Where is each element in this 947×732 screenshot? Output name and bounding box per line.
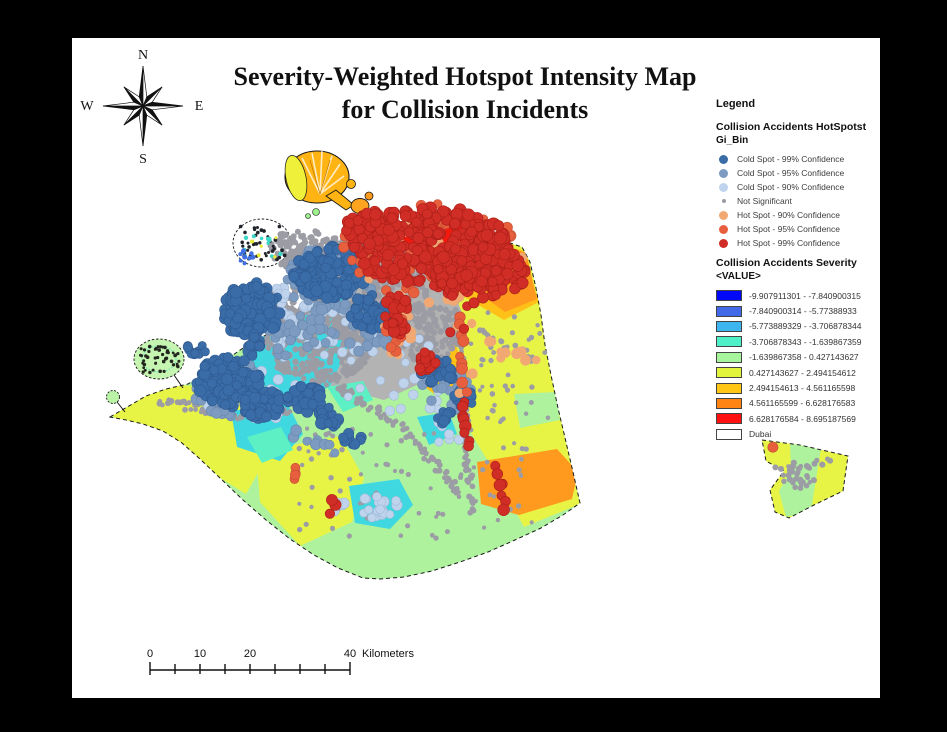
hotspot95-s: [290, 463, 300, 483]
legend-severity-label: 4.561165599 - 6.628176583: [749, 398, 855, 408]
legend-hotspot-row: Hot Spot - 95% Confidence: [716, 222, 880, 236]
legend-severity-label: 6.628176584 - 8.695187569: [749, 414, 856, 424]
legend-hotspot-row: Not Significant: [716, 194, 880, 208]
legend-dot-swatch: [719, 211, 728, 220]
legend-dot-swatch: [719, 183, 728, 192]
legend-severity-label: -1.639867358 - 0.427143627: [749, 352, 859, 362]
legend-color-swatch: [716, 321, 742, 332]
legend-dot-swatch: [719, 169, 728, 178]
legend-severity-label: -7.840900314 - -5.77388933: [749, 306, 857, 316]
legend-dot-swatch: [722, 199, 726, 203]
scale-bar-label: 20: [244, 648, 256, 660]
compass-n-label: N: [138, 48, 148, 63]
legend-hotspot-row: Cold Spot - 95% Confidence: [716, 166, 880, 180]
legend-severity-label: -9.907911301 - -7.840900315: [749, 291, 861, 301]
north-arrow: N S W E: [73, 34, 213, 178]
map-title: Severity-Weighted Hotspot Intensity Map …: [215, 60, 715, 127]
map-page-canvas: N S W E Severity-Weighted Hotspot Intens…: [72, 38, 880, 698]
legend-severity-row: 6.628176584 - 8.695187569: [716, 411, 880, 426]
legend-color-swatch: [716, 306, 742, 317]
compass-w-label: W: [80, 99, 94, 114]
legend-hotspot-label: Hot Spot - 99% Confidence: [737, 238, 840, 248]
hotspot95-exclave: [768, 442, 778, 452]
legend-hotspot-row: Cold Spot - 99% Confidence: [716, 152, 880, 166]
legend-heading: Legend: [716, 98, 880, 110]
legend-hotspot-row: Cold Spot - 90% Confidence: [716, 180, 880, 194]
legend-color-swatch: [716, 352, 742, 363]
compass-s-label: S: [139, 152, 147, 167]
compass-star: [103, 66, 183, 146]
legend-severity-label: Dubai: [749, 429, 771, 439]
legend-hotspot-rows: Cold Spot - 99% Confidence Cold Spot - 9…: [716, 152, 880, 250]
legend-color-swatch: [716, 336, 742, 347]
legend-severity-row: -3.706878343 - -1.639867359: [716, 334, 880, 349]
legend: Legend Collision Accidents HotSpotst Gi_…: [716, 98, 880, 442]
map-title-line2: for Collision Incidents: [215, 93, 715, 126]
legend-hotspot-label: Not Significant: [737, 196, 792, 206]
legend-severity-label: -3.706878343 - -1.639867359: [749, 337, 861, 347]
legend-severity-row: -5.773889329 - -3.706878344: [716, 319, 880, 334]
legend-hotspot-row: Hot Spot - 99% Confidence: [716, 236, 880, 250]
legend-hotspot-label: Hot Spot - 95% Confidence: [737, 224, 840, 234]
legend-severity-row: 2.494154613 - 4.561165598: [716, 380, 880, 395]
scale-bar: 0102040Kilometers: [138, 641, 478, 685]
legend-color-swatch: [716, 383, 742, 394]
page: { "title": { "line1": "Severity-Weighted…: [0, 0, 947, 732]
legend-severity-row: 4.561165599 - 6.628176583: [716, 396, 880, 411]
scale-bar-label: 40: [344, 648, 356, 660]
legend-color-swatch: [716, 290, 742, 301]
legend-color-swatch: [716, 413, 742, 424]
legend-color-swatch: [716, 429, 742, 440]
palm-deira-island: [281, 151, 373, 219]
coldspot99-dock: [183, 341, 209, 358]
compass-e-label: E: [195, 99, 204, 114]
legend-hotspot-subtitle: Gi_Bin: [716, 135, 880, 146]
legend-severity-label: 2.494154613 - 4.561165598: [749, 383, 855, 393]
map-title-line1: Severity-Weighted Hotspot Intensity Map: [215, 60, 715, 93]
legend-hotspot-label: Cold Spot - 90% Confidence: [737, 182, 844, 192]
small-islet: [107, 391, 120, 404]
legend-severity-rows: -9.907911301 - -7.840900315 -7.840900314…: [716, 288, 880, 442]
legend-hotspot-label: Hot Spot - 90% Confidence: [737, 210, 840, 220]
legend-severity-row: -1.639867358 - 0.427143627: [716, 350, 880, 365]
scale-bar-label: 0: [147, 648, 153, 660]
legend-dot-swatch: [719, 155, 728, 164]
legend-severity-row: -9.907911301 - -7.840900315: [716, 288, 880, 303]
scale-bar-unit: Kilometers: [362, 648, 414, 660]
legend-severity-label: 0.427143627 - 2.494154612: [749, 368, 856, 378]
legend-hotspot-label: Cold Spot - 99% Confidence: [737, 154, 844, 164]
legend-severity-row: Dubai: [716, 427, 880, 442]
legend-hotspot-title: Collision Accidents HotSpotst: [716, 121, 880, 133]
legend-dot-swatch: [719, 239, 728, 248]
legend-severity-title: Collision Accidents Severity: [716, 257, 880, 269]
legend-severity-row: -7.840900314 - -5.77388933: [716, 303, 880, 318]
legend-severity-row: 0.427143627 - 2.494154612: [716, 365, 880, 380]
legend-color-swatch: [716, 398, 742, 409]
scale-bar-label: 10: [194, 648, 206, 660]
legend-severity-subtitle: <VALUE>: [716, 271, 880, 282]
legend-color-swatch: [716, 367, 742, 378]
legend-hotspot-row: Hot Spot - 90% Confidence: [716, 208, 880, 222]
legend-severity-label: -5.773889329 - -3.706878344: [749, 321, 861, 331]
legend-dot-swatch: [719, 225, 728, 234]
legend-hotspot-label: Cold Spot - 95% Confidence: [737, 168, 844, 178]
